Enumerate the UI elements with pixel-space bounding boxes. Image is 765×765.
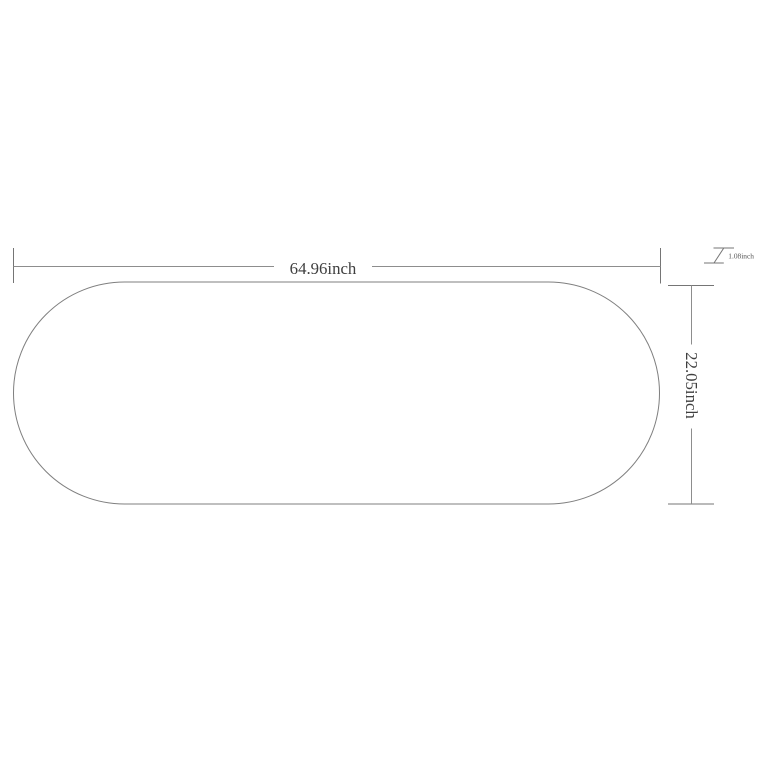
svg-text:1.08inch: 1.08inch — [728, 252, 754, 261]
svg-text:22.05inch: 22.05inch — [682, 352, 701, 419]
svg-text:64.96inch: 64.96inch — [290, 259, 357, 278]
